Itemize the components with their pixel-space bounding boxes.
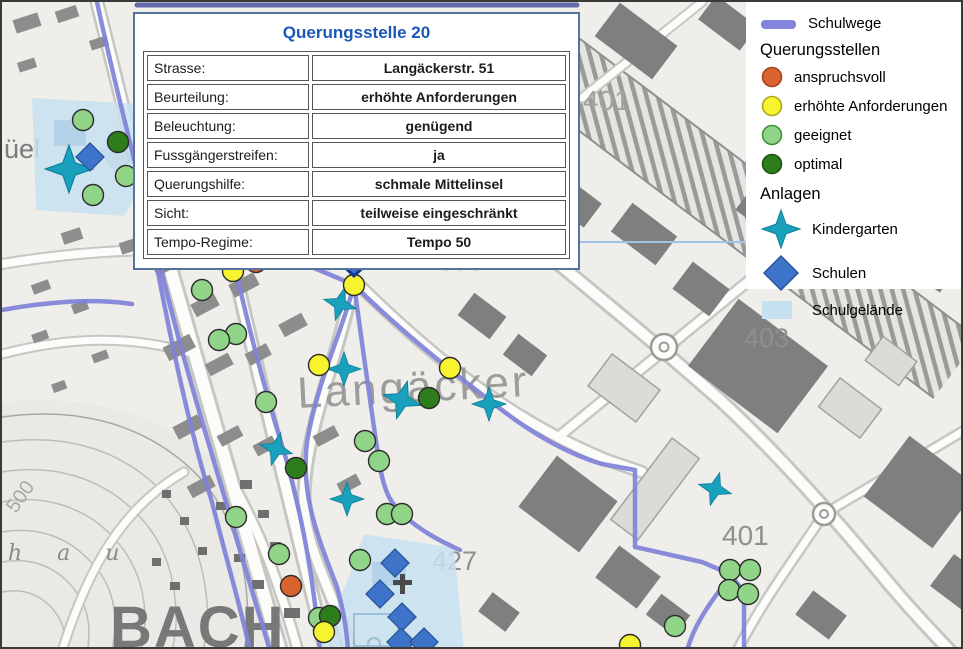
querungsstelle-optimal-marker[interactable]: [286, 458, 307, 479]
querungsstelle-geeignet-marker[interactable]: [269, 544, 290, 565]
legend-item: geeignet: [760, 123, 961, 147]
popup-row-label: Querungshilfe:: [147, 171, 309, 197]
legend-label: Schulgelände: [812, 302, 903, 319]
querungsstelle-geeignet-marker[interactable]: [73, 110, 94, 131]
popup-row: Strasse:Langäckerstr. 51: [147, 55, 566, 81]
map-legend: Schulwege Querungsstellen anspruchsvolle…: [746, 2, 961, 289]
popup-row-label: Sicht:: [147, 200, 309, 226]
querungsstelle-geeignet-marker[interactable]: [720, 560, 741, 581]
popup-row-label: Tempo-Regime:: [147, 229, 309, 255]
querungsstelle-geeignet-marker[interactable]: [226, 507, 247, 528]
popup-row: Querungshilfe:schmale Mittelinsel: [147, 171, 566, 197]
popup-row-label: Beleuchtung:: [147, 113, 309, 139]
popup-row-value: genügend: [312, 113, 566, 139]
popup-row-value: ja: [312, 142, 566, 168]
popup-attribute-table: Strasse:Langäckerstr. 51Beurteilung:erhö…: [143, 51, 570, 259]
map-label: h a u: [8, 541, 133, 566]
popup-row: Tempo-Regime:Tempo 50: [147, 229, 566, 255]
schulwege-line-icon: [760, 17, 798, 31]
querungsstelle-geeignet-marker[interactable]: [350, 550, 371, 571]
map-label: 401: [722, 520, 769, 551]
legend-header-anlagen: Anlagen: [760, 185, 961, 204]
map-label: 401: [583, 85, 630, 116]
diamond-icon: [760, 252, 802, 294]
legend-item: Schulen: [760, 252, 961, 294]
popup-row: Fussgängerstreifen:ja: [147, 142, 566, 168]
circle-marker-icon: [760, 65, 784, 89]
legend-querungsstellen-items: anspruchsvollerhöhte Anforderungengeeign…: [760, 65, 961, 176]
querungsstelle-erhoeht-marker[interactable]: [309, 355, 330, 376]
popup-row: Beurteilung:erhöhte Anforderungen: [147, 84, 566, 110]
legend-label: erhöhte Anforderungen: [794, 98, 947, 115]
popup-row-value: Langäckerstr. 51: [312, 55, 566, 81]
popup-row-value: Tempo 50: [312, 229, 566, 255]
popup-row: Sicht:teilweise eingeschränkt: [147, 200, 566, 226]
legend-label: Kindergarten: [812, 221, 898, 238]
querungsstelle-optimal-marker[interactable]: [419, 388, 440, 409]
legend-label: geeignet: [794, 127, 852, 144]
querungsstelle-geeignet-marker[interactable]: [192, 280, 213, 301]
querungsstelle-geeignet-marker[interactable]: [83, 185, 104, 206]
querungsstelle-geeignet-marker[interactable]: [738, 584, 759, 605]
popup-row: Beleuchtung:genügend: [147, 113, 566, 139]
circle-marker-icon: [760, 123, 784, 147]
querungsstelle-geeignet-marker[interactable]: [355, 431, 376, 452]
popup-row-label: Beurteilung:: [147, 84, 309, 110]
area-icon: [760, 299, 802, 321]
querungsstelle-geeignet-marker[interactable]: [719, 580, 740, 601]
popup-row-value: schmale Mittelinsel: [312, 171, 566, 197]
legend-item: anspruchsvoll: [760, 65, 961, 89]
querungsstelle-anspruchsvoll-marker[interactable]: [281, 576, 302, 597]
popup-row-label: Strasse:: [147, 55, 309, 81]
star-icon: [760, 208, 802, 250]
querungsstelle-geeignet-marker[interactable]: [740, 560, 761, 581]
legend-label: optimal: [794, 156, 842, 173]
legend-item-schulwege: Schulwege: [760, 15, 961, 32]
popup-row-value: erhöhte Anforderungen: [312, 84, 566, 110]
querungsstelle-erhoeht-marker[interactable]: [314, 622, 335, 643]
legend-anlagen-items: KindergartenSchulenSchulgelände: [760, 208, 961, 321]
popup-title: Querungsstelle 20: [143, 23, 570, 43]
legend-item: Kindergarten: [760, 208, 961, 250]
circle-marker-icon: [760, 152, 784, 176]
querungsstelle-geeignet-marker[interactable]: [392, 504, 413, 525]
legend-label: anspruchsvoll: [794, 69, 886, 86]
querungsstelle-erhoeht-marker[interactable]: [620, 635, 641, 649]
legend-label: Schulwege: [808, 15, 881, 32]
map-viewport[interactable]: Langäcker398401403427401500üelh a uBACH …: [0, 0, 963, 649]
querungsstelle-optimal-marker[interactable]: [108, 132, 129, 153]
querungsstelle-geeignet-marker[interactable]: [665, 616, 686, 637]
querungsstelle-erhoeht-marker[interactable]: [344, 275, 365, 296]
legend-item: optimal: [760, 152, 961, 176]
popup-row-label: Fussgängerstreifen:: [147, 142, 309, 168]
querungsstelle-geeignet-marker[interactable]: [209, 330, 230, 351]
legend-header-querungsstellen: Querungsstellen: [760, 41, 961, 60]
tile-seam: [580, 241, 748, 243]
feature-popup: Querungsstelle 20 Strasse:Langäckerstr. …: [133, 12, 580, 270]
querungsstelle-erhoeht-marker[interactable]: [440, 358, 461, 379]
legend-item: erhöhte Anforderungen: [760, 94, 961, 118]
map-label: 403: [744, 323, 789, 353]
circle-marker-icon: [760, 94, 784, 118]
popup-row-value: teilweise eingeschränkt: [312, 200, 566, 226]
querungsstelle-geeignet-marker[interactable]: [369, 451, 390, 472]
querungsstelle-geeignet-marker[interactable]: [256, 392, 277, 413]
legend-label: Schulen: [812, 265, 866, 282]
legend-item: Schulgelände: [760, 299, 961, 321]
